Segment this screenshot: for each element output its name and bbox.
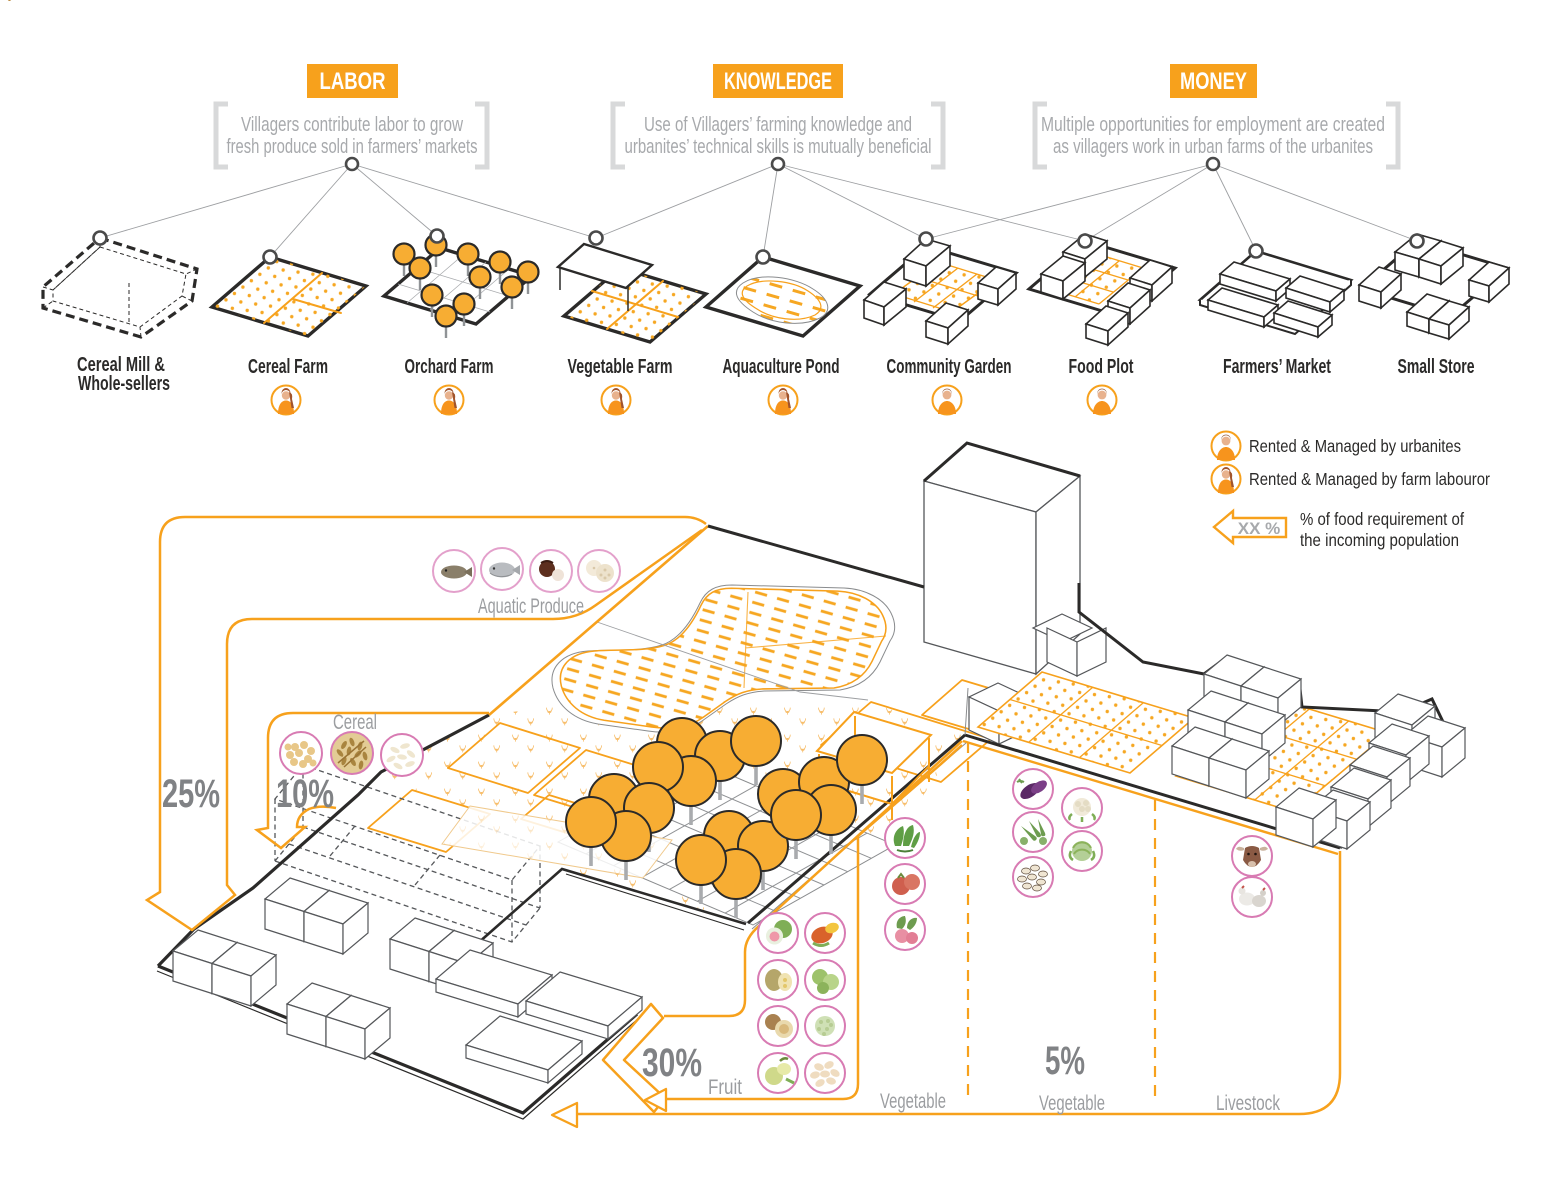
svg-text:Whole-sellers: Whole-sellers: [78, 373, 170, 395]
svg-text:MONEY: MONEY: [1180, 68, 1247, 95]
svg-text:Rented & Managed by urbanites: Rented & Managed by urbanites: [1249, 436, 1461, 456]
svg-text:the incoming population: the incoming population: [1300, 530, 1459, 550]
svg-text:% of food requirement of: % of food requirement of: [1300, 509, 1464, 529]
svg-text:Food Plot: Food Plot: [1069, 356, 1134, 378]
svg-text:Fruit: Fruit: [708, 1076, 742, 1099]
svg-text:Livestock: Livestock: [1216, 1092, 1280, 1115]
svg-text:Orchard Farm: Orchard Farm: [405, 356, 494, 378]
svg-text:10%: 10%: [276, 772, 334, 816]
svg-text:Farmers’ Market: Farmers’ Market: [1223, 356, 1331, 378]
svg-text:urbanites’ technical skills is: urbanites’ technical skills is mutually …: [625, 136, 932, 158]
svg-text:XX %: XX %: [1238, 519, 1281, 538]
svg-text:as villagers work in urban far: as villagers work in urban farms of the …: [1053, 136, 1373, 158]
svg-text:Vegetable Farm: Vegetable Farm: [568, 356, 673, 378]
svg-text:Aquatic Produce: Aquatic Produce: [478, 595, 584, 618]
svg-text:fresh produce sold in farmers’: fresh produce sold in farmers’ markets: [227, 136, 478, 158]
svg-text:Vegetable: Vegetable: [880, 1090, 946, 1113]
svg-text:Use of Villagers’ farming know: Use of Villagers’ farming knowledge and: [644, 114, 912, 136]
svg-text:Small Store: Small Store: [1398, 356, 1475, 378]
svg-text:Multiple opportunities for emp: Multiple opportunities for employment ar…: [1041, 114, 1385, 136]
svg-text:Villagers contribute labor to: Villagers contribute labor to grow: [241, 114, 463, 136]
svg-text:LABOR: LABOR: [320, 68, 386, 95]
svg-text:30%: 30%: [642, 1041, 702, 1085]
svg-text:Cereal Farm: Cereal Farm: [248, 356, 328, 378]
svg-text:KNOWLEDGE: KNOWLEDGE: [724, 68, 832, 95]
svg-text:Aquaculture Pond: Aquaculture Pond: [723, 356, 840, 378]
svg-text:Rented & Managed by farm labou: Rented & Managed by farm labouror: [1249, 469, 1490, 489]
svg-text:25%: 25%: [162, 772, 220, 816]
svg-text:Cereal: Cereal: [333, 711, 377, 734]
svg-text:Community Garden: Community Garden: [887, 356, 1012, 378]
svg-text:5%: 5%: [1045, 1039, 1085, 1083]
svg-text:Vegetable: Vegetable: [1039, 1092, 1105, 1115]
